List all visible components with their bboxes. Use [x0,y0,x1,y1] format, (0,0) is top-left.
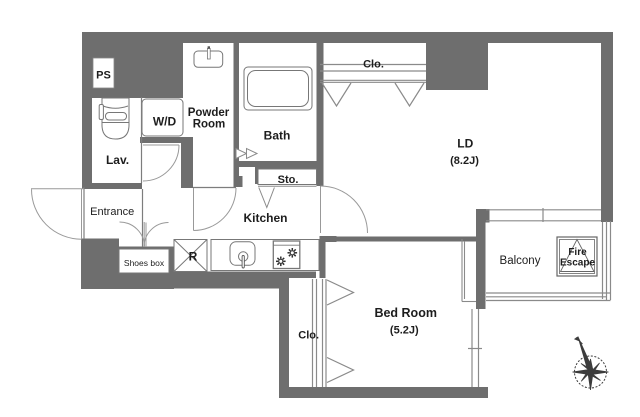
svg-text:PS: PS [96,70,111,82]
svg-text:Clo.: Clo. [298,329,319,341]
svg-text:Powder: Powder [188,107,230,119]
svg-text:LD: LD [457,137,473,151]
svg-text:Escape: Escape [560,258,595,269]
svg-text:Balcony: Balcony [500,255,541,267]
svg-text:W/D: W/D [153,115,177,129]
svg-text:Kitchen: Kitchen [243,211,287,225]
svg-text:R: R [189,250,198,264]
svg-text:Bed Room: Bed Room [374,306,437,320]
svg-text:Room: Room [193,119,226,131]
svg-text:Lav.: Lav. [106,153,129,167]
svg-text:Clo.: Clo. [363,59,384,71]
svg-text:Bath: Bath [264,129,291,143]
svg-text:Fire: Fire [568,247,587,258]
svg-text:(5.2J): (5.2J) [390,324,419,336]
svg-text:(8.2J): (8.2J) [450,155,479,167]
svg-text:Shoes box: Shoes box [124,258,165,268]
svg-text:Entrance: Entrance [90,206,134,218]
svg-text:Sto.: Sto. [278,174,299,186]
